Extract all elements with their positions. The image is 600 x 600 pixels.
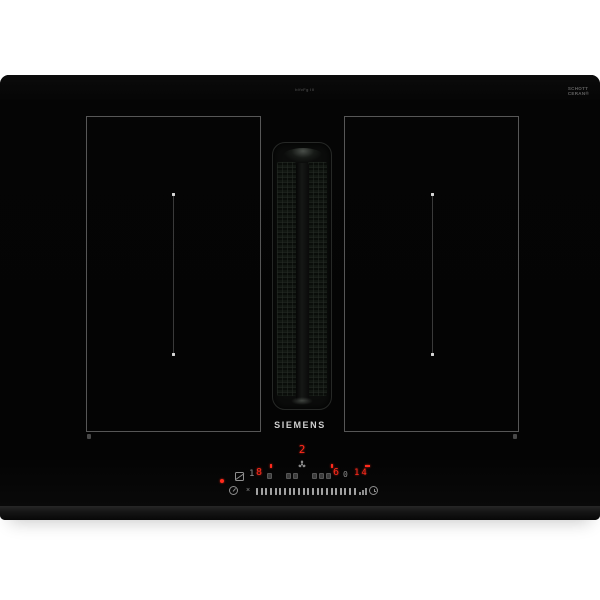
right-zone-aux-display: 0	[343, 470, 348, 479]
zone-display-square	[319, 473, 324, 479]
slider-tick	[307, 488, 309, 495]
slider-tick	[256, 488, 258, 495]
left-zone-level-display: 8	[256, 467, 262, 478]
left-zone-boost-indicator	[270, 464, 272, 468]
slider-tick	[284, 488, 286, 495]
right-zone-center-line	[432, 194, 433, 355]
slider-tick	[298, 488, 300, 495]
slider-tick	[340, 488, 342, 495]
slider-tick	[344, 488, 346, 495]
zone-display-square	[286, 473, 291, 479]
extractor-grille-left	[277, 162, 296, 396]
extractor-bottom-highlight	[291, 397, 313, 405]
induction-hob: b/fvFg III SCHOTT CERAN®	[0, 75, 600, 520]
slider-tick	[303, 488, 305, 495]
slider-tick	[270, 488, 272, 495]
power-ramp-icon	[359, 487, 367, 495]
model-marking-text: b/fvFg III	[295, 87, 315, 92]
siemens-logo: SIEMENS	[274, 420, 326, 430]
right-zone-touch-square	[326, 473, 331, 479]
clock-icon	[369, 486, 378, 495]
right-zone-level-display: 6	[333, 467, 339, 478]
slider-tick	[293, 488, 295, 495]
zone-display-square	[312, 473, 317, 479]
schott-ceran-marking: SCHOTT CERAN®	[568, 86, 589, 96]
right-zone-top-dot	[431, 193, 434, 196]
schott-ceran-line2: CERAN®	[568, 91, 589, 96]
product-photo: b/fvFg III SCHOTT CERAN®	[0, 0, 600, 600]
timer-overline-indicator	[365, 465, 370, 467]
slider-tick	[279, 488, 281, 495]
slider-tick	[317, 488, 319, 495]
left-zone-touch-square	[267, 473, 272, 479]
flex-zone-marker-left	[87, 434, 91, 439]
slider-tick	[261, 488, 263, 495]
left-zone-center-line	[173, 194, 174, 355]
slider-tick	[354, 488, 356, 495]
slider-tick	[265, 488, 267, 495]
extractor-center-channel	[296, 163, 309, 401]
slider-tick	[326, 488, 328, 495]
slider-tick	[312, 488, 314, 495]
zone-display-square	[293, 473, 298, 479]
slider-tick	[335, 488, 337, 495]
left-zone-top-dot	[172, 193, 175, 196]
extractor-grille-right	[308, 162, 327, 396]
flex-zone-marker-right	[513, 434, 517, 439]
left-zone-bottom-dot	[172, 353, 175, 356]
pan-move-icon	[235, 472, 244, 481]
downdraft-extractor	[272, 142, 332, 410]
slider-tick	[331, 488, 333, 495]
timer-display: 14	[354, 468, 369, 478]
slider-tick	[321, 488, 323, 495]
extractor-rim-highlight	[283, 148, 323, 163]
glass-surface: b/fvFg III SCHOTT CERAN®	[0, 75, 600, 506]
power-slider-ticks	[256, 487, 356, 495]
slider-tick	[275, 488, 277, 495]
power-indicator-dot	[220, 479, 224, 483]
slider-tick	[349, 488, 351, 495]
right-zone-bottom-dot	[431, 353, 434, 356]
left-zone-aux-display: 1	[249, 469, 254, 479]
hood-level-display: 2	[299, 444, 306, 455]
hob-front-edge	[0, 506, 600, 520]
slider-off-icon: ×	[246, 487, 250, 495]
hood-fan-icon	[298, 460, 307, 469]
timer-icon	[229, 486, 238, 495]
slider-tick	[289, 488, 291, 495]
